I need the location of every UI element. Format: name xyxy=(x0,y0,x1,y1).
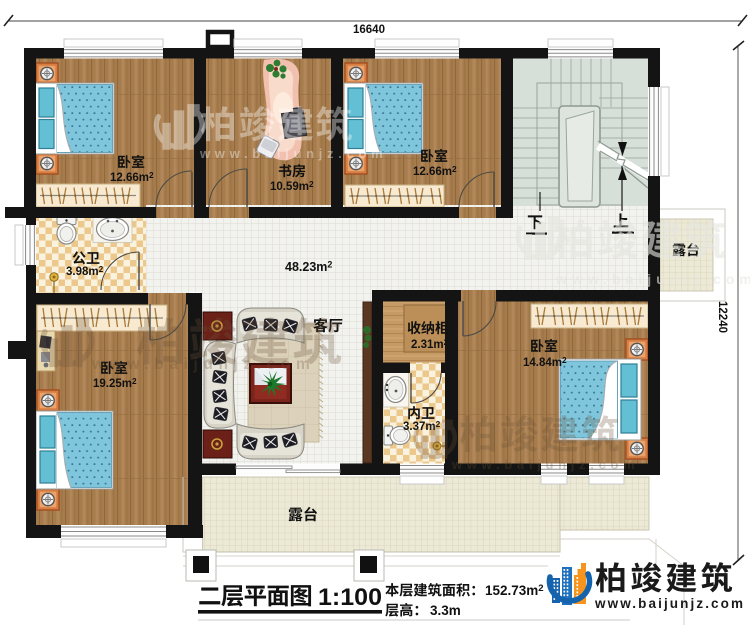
svg-text:12.66m2: 12.66m2 xyxy=(413,164,457,178)
svg-text:48.23m2: 48.23m2 xyxy=(285,260,332,275)
svg-text:16640: 16640 xyxy=(353,24,385,36)
svg-text:www.baijunjz.com: www.baijunjz.com xyxy=(451,457,639,472)
svg-text:www.baijunjz.com: www.baijunjz.com xyxy=(199,146,387,161)
svg-text:www.baijunjz.com: www.baijunjz.com xyxy=(555,271,750,287)
svg-text:www.baijunjz.com: www.baijunjz.com xyxy=(91,356,315,373)
svg-text:152.73m2: 152.73m2 xyxy=(485,583,544,598)
svg-text:www.baijunjz.com: www.baijunjz.com xyxy=(594,596,745,611)
svg-text:1:100: 1:100 xyxy=(318,584,382,611)
svg-text:10.59m2: 10.59m2 xyxy=(270,179,314,193)
svg-text:3.3m: 3.3m xyxy=(430,603,461,618)
svg-text:14.84m2: 14.84m2 xyxy=(523,355,567,369)
svg-text:3.98m2: 3.98m2 xyxy=(66,264,104,278)
svg-text:12.66m2: 12.66m2 xyxy=(110,170,154,184)
svg-text:19.25m2: 19.25m2 xyxy=(93,376,137,390)
svg-text:2.31m2: 2.31m2 xyxy=(411,337,449,351)
svg-text:12240: 12240 xyxy=(716,301,728,333)
